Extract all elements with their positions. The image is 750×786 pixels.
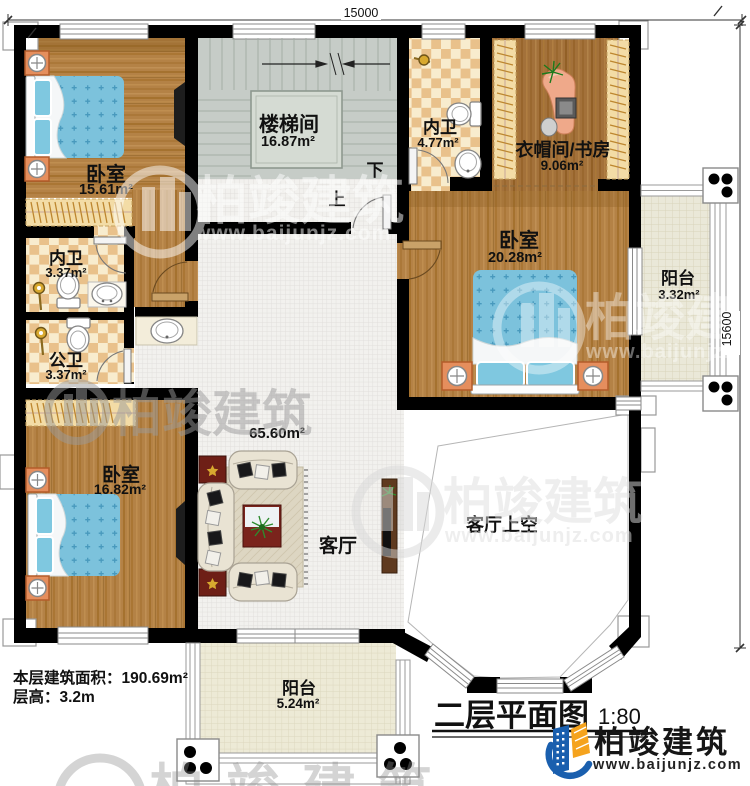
svg-text:客厅: 客厅 bbox=[319, 534, 357, 557]
svg-text:柏竣建筑: 柏竣建筑 bbox=[443, 474, 643, 530]
svg-text:5.24m²: 5.24m² bbox=[277, 696, 320, 711]
svg-text:阳台: 阳台 bbox=[661, 268, 695, 288]
svg-text:20.28m²: 20.28m² bbox=[488, 250, 542, 266]
svg-text:柏竣建筑: 柏竣建筑 bbox=[150, 760, 454, 786]
svg-text:衣帽间/书房: 衣帽间/书房 bbox=[515, 139, 610, 160]
svg-text:卧室: 卧室 bbox=[499, 228, 539, 252]
svg-text:www.baijunjz.com: www.baijunjz.com bbox=[592, 757, 742, 773]
svg-text:阳台: 阳台 bbox=[282, 678, 316, 698]
svg-text:15600: 15600 bbox=[720, 312, 734, 347]
svg-text:15000: 15000 bbox=[344, 6, 379, 20]
svg-text:4.77m²: 4.77m² bbox=[417, 135, 459, 150]
svg-text:9.06m²: 9.06m² bbox=[541, 158, 584, 173]
svg-text:16.82m²: 16.82m² bbox=[94, 481, 146, 497]
svg-text:层高：3.2m: 层高：3.2m bbox=[13, 687, 95, 706]
svg-text:本层建筑面积：190.69m²: 本层建筑面积：190.69m² bbox=[13, 668, 188, 687]
svg-text:www.baijunjz.com: www.baijunjz.com bbox=[193, 222, 391, 245]
svg-text:3.37m²: 3.37m² bbox=[45, 265, 87, 280]
svg-text:内卫: 内卫 bbox=[423, 117, 457, 137]
svg-text:柏竣建筑: 柏竣建筑 bbox=[112, 386, 312, 442]
svg-text:www.baijunjz.com: www.baijunjz.com bbox=[444, 525, 634, 547]
svg-text:楼梯间: 楼梯间 bbox=[259, 112, 319, 136]
svg-text:16.87m²: 16.87m² bbox=[261, 134, 315, 150]
svg-text:柏竣建筑: 柏竣建筑 bbox=[594, 725, 730, 760]
